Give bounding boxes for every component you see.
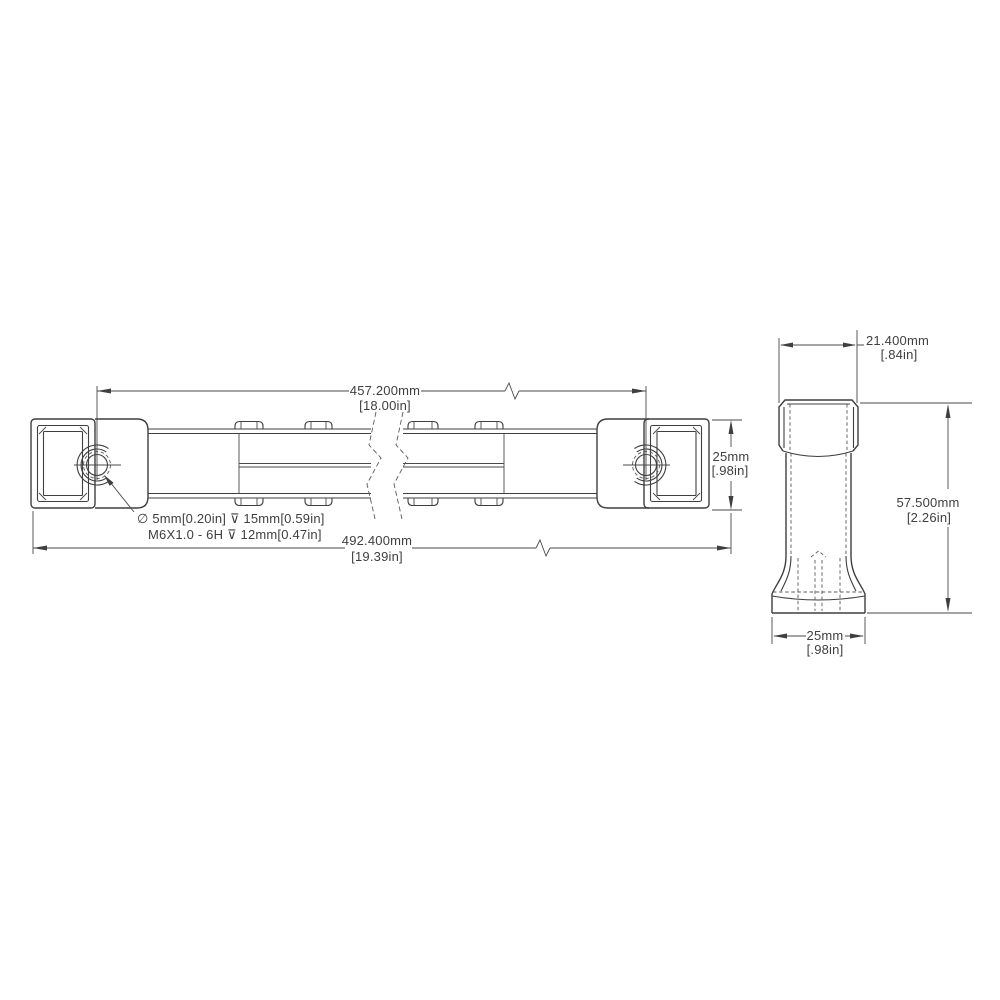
dim-overall-length-mm: 492.400mm: [342, 533, 412, 548]
dim-overall-height-mm: 57.500mm: [896, 495, 959, 510]
right-end-cap: [597, 419, 649, 508]
dim-hole-spacing-in: [18.00in]: [359, 398, 411, 413]
side-view: 21.400mm [.84in] 57.500mm [2.26in] 25mm …: [772, 330, 972, 657]
left-hole: [74, 386, 121, 485]
rail-tabs-bottom: [235, 498, 503, 506]
side-cap: [779, 400, 858, 457]
left-flange: [31, 419, 95, 508]
hole-callout-line2: M6X1.0 - 6H ⊽ 12mm[0.47in]: [148, 527, 322, 542]
dim-base-width-mm: 25mm: [807, 628, 844, 643]
dim-top-width-in: [.84in]: [881, 347, 918, 362]
front-view: 457.200mm [18.00in] 492.400mm [19.39in] …: [31, 383, 749, 564]
left-end-cap: [95, 419, 148, 508]
drawing-canvas: 457.200mm [18.00in] 492.400mm [19.39in] …: [0, 0, 1000, 1000]
dim-base-width-in: [.98in]: [807, 642, 844, 657]
right-flange: [644, 419, 709, 508]
dim-top-width-mm: 21.400mm: [866, 333, 929, 348]
dim-top-width: 21.400mm [.84in]: [779, 330, 929, 403]
technical-drawing: 457.200mm [18.00in] 492.400mm [19.39in] …: [0, 0, 1000, 1000]
hole-callout-line1: ∅ 5mm[0.20in] ⊽ 15mm[0.59in]: [137, 511, 325, 526]
right-hole: [623, 386, 670, 485]
rail-tabs-top: [235, 422, 503, 430]
dim-hole-spacing-mm: 457.200mm: [350, 383, 420, 398]
dim-rail-height-in: [.98in]: [712, 463, 749, 478]
dim-overall-height-in: [2.26in]: [907, 510, 951, 525]
dim-overall-length-in: [19.39in]: [351, 549, 403, 564]
side-base: [772, 551, 865, 613]
rail-body: [148, 429, 597, 498]
side-stem: [786, 453, 851, 556]
dim-base-width: 25mm [.98in]: [772, 617, 865, 657]
dim-rail-height: 25mm [.98in]: [712, 420, 750, 510]
dim-overall-height: 57.500mm [2.26in]: [860, 403, 972, 613]
dim-rail-height-mm: 25mm: [713, 449, 750, 464]
dim-hole-spacing: 457.200mm [18.00in]: [97, 383, 646, 413]
rail-break: [367, 412, 408, 519]
